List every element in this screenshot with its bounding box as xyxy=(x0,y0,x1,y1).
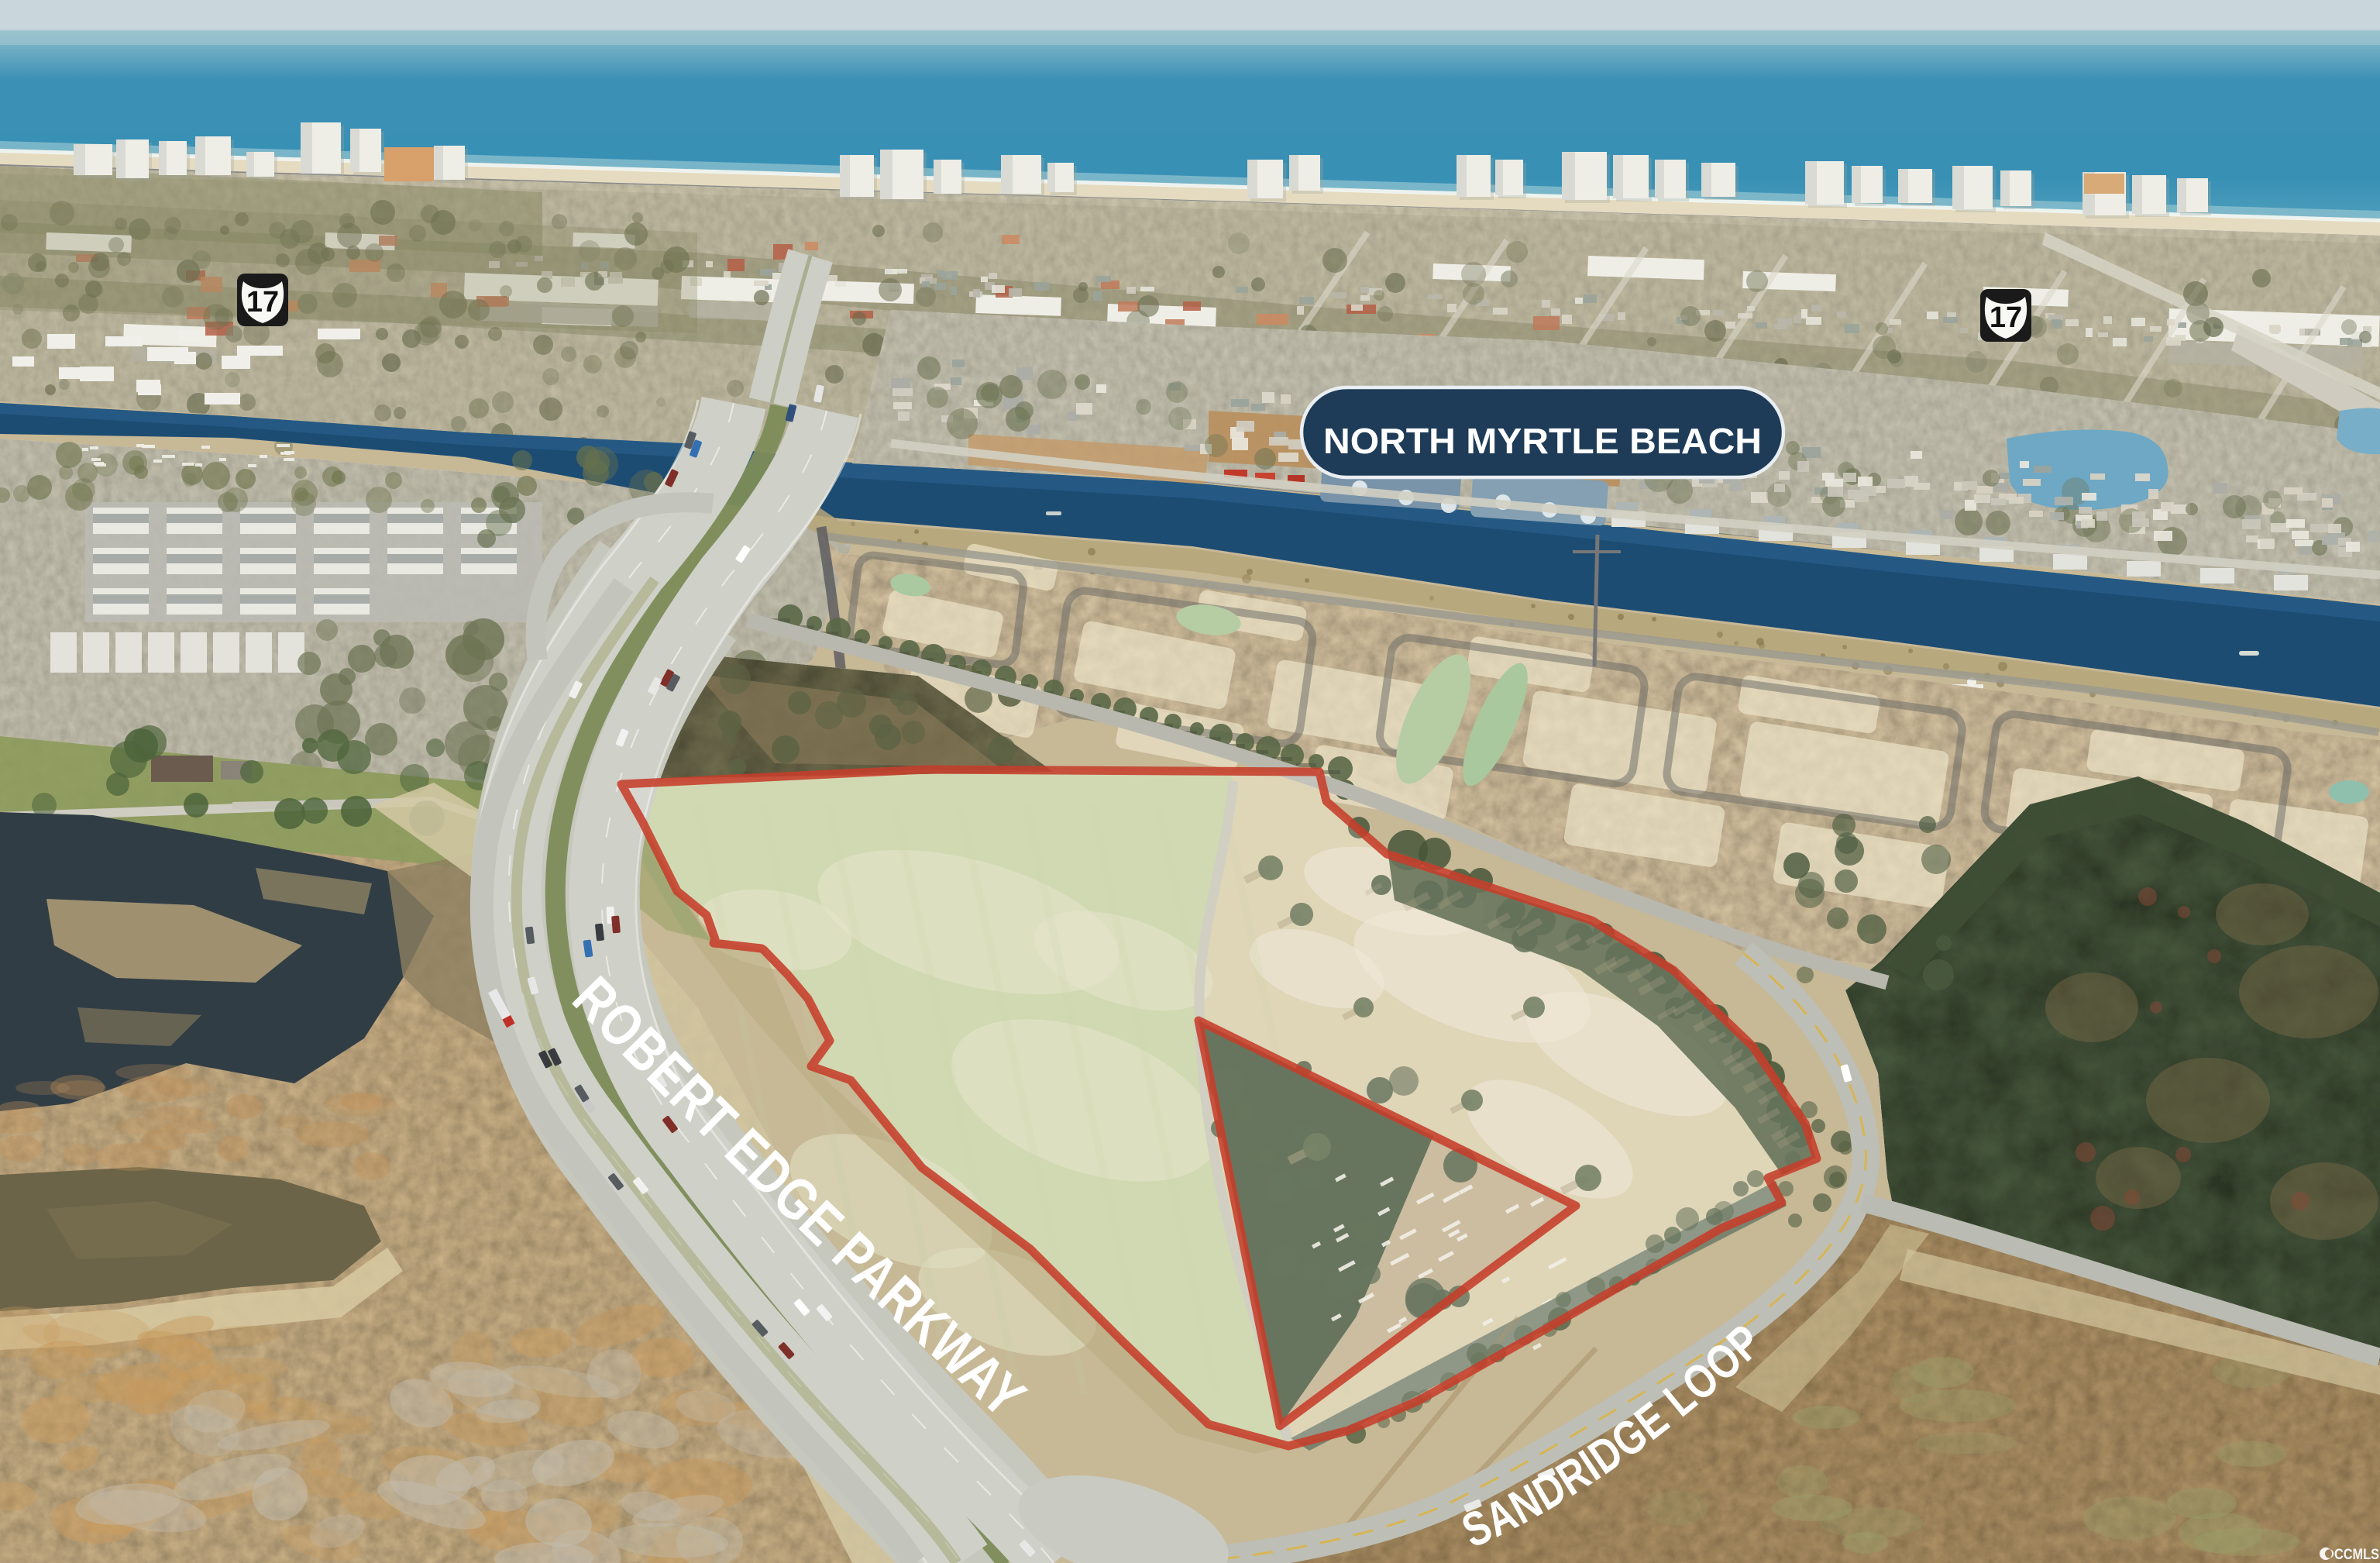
svg-text:NORTH MYRTLE BEACH: NORTH MYRTLE BEACH xyxy=(1323,421,1762,461)
svg-text:CCMLS: CCMLS xyxy=(2334,1547,2379,1563)
